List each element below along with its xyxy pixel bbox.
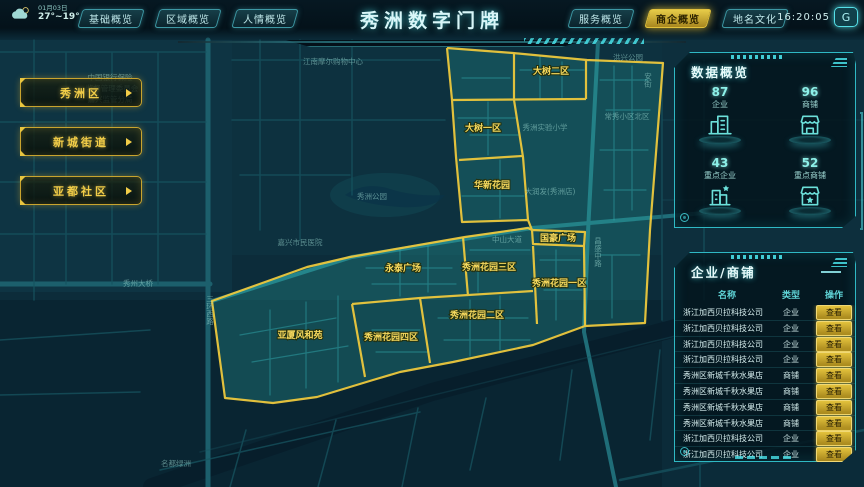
view-button[interactable]: 查看 bbox=[816, 305, 852, 320]
cell-name: 秀洲区新城千秋水果店 bbox=[683, 370, 771, 381]
map-poi-label: 三环西路 bbox=[205, 295, 214, 325]
panel-dial-decor bbox=[680, 213, 689, 222]
map-region-label: 大树二区 bbox=[533, 65, 569, 77]
map-region-label: 秀洲花园一区 bbox=[531, 277, 586, 289]
map-poi-label: 洪兴公园 bbox=[613, 52, 643, 62]
map-region-label: 永泰广场 bbox=[384, 262, 421, 274]
view-button[interactable]: 查看 bbox=[816, 368, 852, 383]
stat-label: 重点企业 bbox=[704, 170, 736, 181]
arrow-right-icon bbox=[126, 187, 132, 195]
stat-pedestal-decor bbox=[699, 136, 741, 144]
page-title: 秀洲数字门牌 bbox=[360, 6, 504, 33]
cell-name: 浙江加西贝拉科技公司 bbox=[683, 354, 771, 365]
tab-people-overview[interactable]: 人情概览 bbox=[231, 9, 298, 28]
stat-pedestal-decor bbox=[789, 136, 831, 144]
cell-name: 浙江加西贝拉科技公司 bbox=[683, 307, 771, 318]
tab-service-overview[interactable]: 服务概览 bbox=[567, 9, 634, 28]
cell-type: 企业 bbox=[771, 354, 811, 365]
map-region-label: 大树一区 bbox=[465, 122, 501, 134]
nav-button-label: 亚都社区 bbox=[53, 183, 109, 199]
cell-type: 商铺 bbox=[771, 370, 811, 381]
tab-label: 服务概览 bbox=[579, 11, 623, 26]
arrow-right-icon bbox=[126, 89, 132, 97]
tab-label: 基础概览 bbox=[89, 11, 133, 26]
stat-card: 96商铺 bbox=[765, 83, 855, 154]
view-button[interactable]: 查看 bbox=[816, 337, 852, 352]
view-button[interactable]: 查看 bbox=[816, 431, 852, 446]
cell-type: 企业 bbox=[771, 307, 811, 318]
map-poi-label: 昌盛中路 bbox=[593, 237, 602, 267]
view-button[interactable]: 查看 bbox=[816, 416, 852, 431]
tab-label: 人情概览 bbox=[243, 11, 287, 26]
table-row: 浙江加西贝拉科技公司企业查看 bbox=[675, 352, 855, 368]
power-button[interactable]: G bbox=[834, 7, 858, 27]
stat-card: 52重点商铺 bbox=[765, 154, 855, 225]
view-button[interactable]: 查看 bbox=[816, 400, 852, 415]
header-tabs-left: 基础概览 区域概览 人情概览 bbox=[80, 9, 296, 28]
shop-icon bbox=[797, 112, 823, 138]
cell-type: 商铺 bbox=[771, 418, 811, 429]
tab-business-overview[interactable]: 商企概览 bbox=[644, 9, 711, 28]
shop-star-icon bbox=[797, 183, 823, 209]
stat-value: 96 bbox=[802, 86, 819, 99]
map-poi-label: 秀州大桥 bbox=[123, 278, 153, 288]
cell-type: 企业 bbox=[771, 323, 811, 334]
map-poi-label: 江南摩尔购物中心 bbox=[303, 56, 363, 66]
cell-name: 浙江加西贝拉科技公司 bbox=[683, 339, 771, 350]
business-panel: 企业/商铺 名称 类型 操作 浙江加西贝拉科技公司企业查看浙江加西贝拉科技公司企… bbox=[674, 252, 856, 462]
tab-label: 商企概览 bbox=[656, 11, 700, 26]
weather-temp: 27°~19° bbox=[38, 13, 80, 23]
weather-widget: 01月03日 27°~19° bbox=[10, 5, 80, 23]
table-body: 浙江加西贝拉科技公司企业查看浙江加西贝拉科技公司企业查看浙江加西贝拉科技公司企业… bbox=[675, 305, 855, 463]
panel-hash-decor bbox=[731, 255, 785, 259]
stat-value: 52 bbox=[802, 157, 819, 170]
cell-name: 秀洲区新城千秋水果店 bbox=[683, 402, 771, 413]
map-poi-label: 安街 bbox=[643, 71, 652, 89]
nav-button-xincheng-street[interactable]: 新城街道 bbox=[20, 127, 142, 156]
view-button[interactable]: 查看 bbox=[816, 321, 852, 336]
stat-pedestal-decor bbox=[789, 207, 831, 215]
map-poi-label: 秀洲公园 bbox=[357, 191, 387, 201]
column-header-name: 名称 bbox=[683, 288, 771, 301]
header-bar: 01月03日 27°~19° 基础概览 区域概览 人情概览 秀洲数字门牌 服务概… bbox=[0, 0, 864, 40]
tab-label: 区域概览 bbox=[166, 11, 210, 26]
stat-value: 43 bbox=[712, 157, 729, 170]
screen-edge-decor bbox=[860, 112, 863, 230]
stat-pedestal-decor bbox=[699, 207, 741, 215]
map-poi-label: 常秀小区北区 bbox=[605, 111, 650, 121]
cell-type: 商铺 bbox=[771, 402, 811, 413]
view-button[interactable]: 查看 bbox=[816, 384, 852, 399]
nav-button-xiuzhou-district[interactable]: 秀洲区 bbox=[20, 78, 142, 107]
stats-grid: 87企业96商铺43重点企业52重点商铺 bbox=[675, 83, 855, 225]
panel-hash-decor bbox=[731, 55, 785, 59]
table-row: 浙江加西贝拉科技公司企业查看 bbox=[675, 431, 855, 447]
arrow-right-icon bbox=[126, 138, 132, 146]
map-region-label: 华新花园 bbox=[474, 179, 510, 191]
table-header: 名称 类型 操作 bbox=[675, 281, 855, 305]
table-row: 浙江加西贝拉科技公司企业查看 bbox=[675, 337, 855, 353]
cell-type: 企业 bbox=[771, 339, 811, 350]
cell-type: 商铺 bbox=[771, 386, 811, 397]
tab-label: 地名文化 bbox=[733, 11, 777, 26]
building-icon bbox=[707, 112, 733, 138]
nav-button-label: 秀洲区 bbox=[60, 85, 102, 101]
view-button[interactable]: 查看 bbox=[816, 352, 852, 367]
cell-name: 秀洲区新城千秋水果店 bbox=[683, 418, 771, 429]
column-header-type: 类型 bbox=[771, 288, 811, 301]
table-row: 秀洲区新城千秋水果店商铺查看 bbox=[675, 368, 855, 384]
cell-type: 企业 bbox=[771, 433, 811, 444]
map-poi-label: 嘉兴市民医院 bbox=[278, 237, 323, 247]
stat-card: 87企业 bbox=[675, 83, 765, 154]
column-header-action: 操作 bbox=[811, 288, 857, 301]
stat-value: 87 bbox=[712, 86, 729, 99]
panel-title-dash-decor bbox=[821, 271, 841, 273]
table-row: 秀洲区新城千秋水果店商铺查看 bbox=[675, 400, 855, 416]
cell-name: 浙江加西贝拉科技公司 bbox=[683, 323, 771, 334]
table-row: 浙江加西贝拉科技公司企业查看 bbox=[675, 305, 855, 321]
panel-dial-decor bbox=[680, 447, 689, 456]
stat-label: 商铺 bbox=[802, 99, 818, 110]
data-overview-panel: 数据概览 87企业96商铺43重点企业52重点商铺 bbox=[674, 52, 856, 228]
panel-foot-decor bbox=[735, 456, 791, 459]
clock: 16:20:05 bbox=[777, 12, 830, 23]
stat-label: 重点商铺 bbox=[794, 170, 826, 181]
map-region-label: 秀洲花园三区 bbox=[461, 261, 516, 273]
table-row: 浙江加西贝拉科技公司企业查看 bbox=[675, 321, 855, 337]
tab-region-overview[interactable]: 区域概览 bbox=[154, 9, 221, 28]
cell-name: 秀洲区新城千秋水果店 bbox=[683, 386, 771, 397]
header-tabs-right: 服务概览 商企概览 地名文化 bbox=[570, 9, 786, 28]
nav-button-label: 新城街道 bbox=[53, 134, 109, 150]
tab-basic-overview[interactable]: 基础概览 bbox=[77, 9, 144, 28]
stat-label: 企业 bbox=[712, 99, 728, 110]
building-star-icon bbox=[707, 183, 733, 209]
table-row: 秀洲区新城千秋水果店商铺查看 bbox=[675, 416, 855, 432]
map-poi-label: 秀洲实验小学 bbox=[523, 122, 568, 132]
map-poi-label: 大润发(秀洲店) bbox=[525, 186, 576, 196]
nav-button-yadu-community[interactable]: 亚都社区 bbox=[20, 176, 142, 205]
map-region-label: 秀洲花园四区 bbox=[363, 331, 418, 343]
cell-name: 浙江加西贝拉科技公司 bbox=[683, 433, 771, 444]
map-region-label: 国豪广场 bbox=[540, 232, 576, 244]
map-poi-label: 名都绿洲 bbox=[161, 458, 191, 468]
map-region-label: 秀洲花园二区 bbox=[449, 309, 504, 321]
weather-cloud-icon bbox=[10, 5, 32, 23]
stat-card: 43重点企业 bbox=[675, 154, 765, 225]
area-nav: 秀洲区 新城街道 亚都社区 bbox=[20, 78, 144, 225]
map-region-label: 亚厦风和苑 bbox=[277, 329, 322, 341]
screen: 江南摩尔购物中心洪兴公园常秀小区北区秀洲实验小学大润发(秀洲店)中山大道昌盛中路… bbox=[0, 0, 864, 487]
map-poi-label: 中山大道 bbox=[492, 234, 522, 244]
table-row: 秀洲区新城千秋水果店商铺查看 bbox=[675, 384, 855, 400]
